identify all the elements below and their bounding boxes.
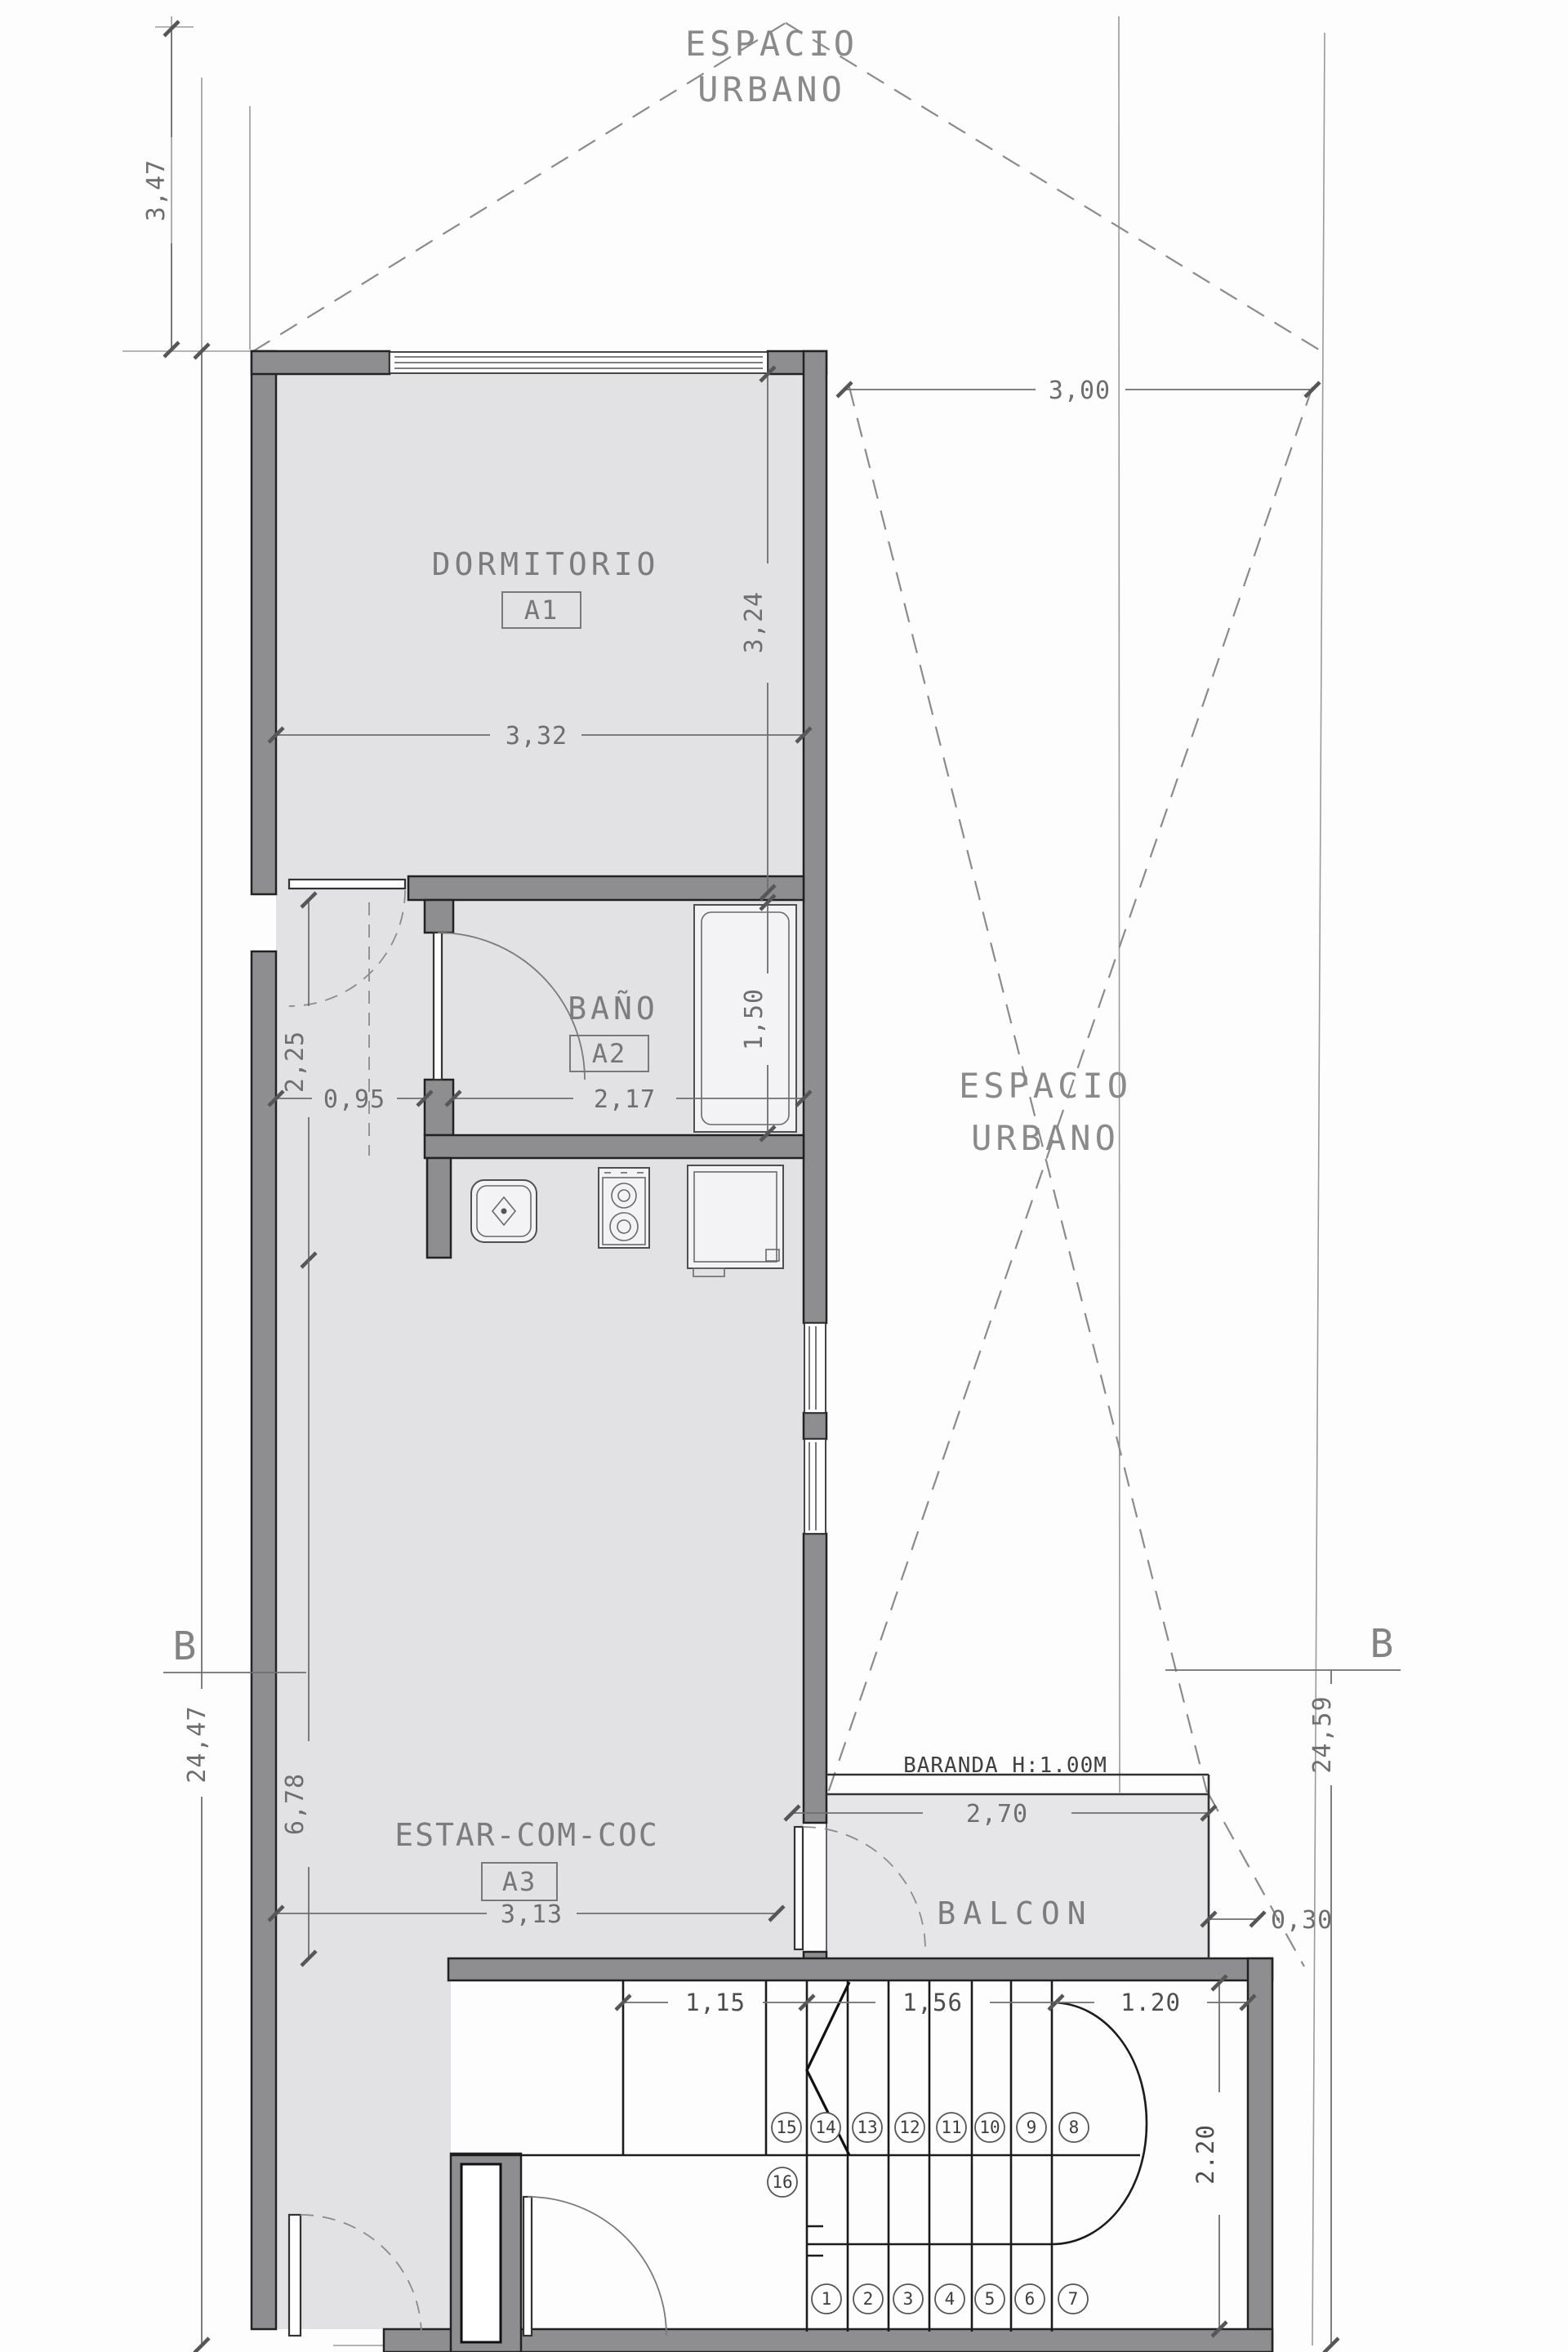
dim-dorm-depth: 3,24 xyxy=(740,591,768,653)
step-number-11: 11 xyxy=(941,2118,961,2137)
dim-lot-depth-right: 24,59 xyxy=(1308,1695,1337,1773)
step-number-13: 13 xyxy=(857,2118,877,2137)
espacio-urbano-right-line2: URBANO xyxy=(971,1118,1120,1158)
stair-step-circles: 15141312111098161234567 xyxy=(768,2113,1089,2314)
dim-estar-width: 3,13 xyxy=(501,1900,563,1929)
window-right-1 xyxy=(804,1323,826,1413)
step-number-12: 12 xyxy=(899,2118,920,2137)
dim-balcony-width: 2,70 xyxy=(966,1800,1028,1829)
fridge xyxy=(688,1165,783,1276)
dim-balcony-offset: 0,30 xyxy=(1271,1906,1333,1935)
dim-front-setback: 3,47 xyxy=(142,159,171,221)
dim-lot-depth-left: 24,47 xyxy=(183,1705,212,1783)
dim-stair-depth: 2.20 xyxy=(1192,2124,1219,2185)
wall-left-lower xyxy=(252,951,276,2329)
dim-estar-depth: 6,78 xyxy=(281,1773,310,1835)
wall-right-pier xyxy=(804,1413,826,1439)
step-number-3: 3 xyxy=(903,2289,914,2309)
floorplan-canvas: 15141312111098161234567 3,32 3,24 0,95 2… xyxy=(0,0,1568,2352)
step-number-4: 4 xyxy=(945,2289,955,2309)
dim-bath-depth: 1,50 xyxy=(740,988,768,1050)
door-stairhall-leaf xyxy=(523,2197,532,2336)
step-number-7: 7 xyxy=(1068,2289,1079,2309)
window-right-2 xyxy=(804,1439,826,1534)
room-label-balcon: BALCON xyxy=(937,1895,1093,1931)
wall-left-upper xyxy=(252,351,276,894)
door-stairhall-swing xyxy=(528,2197,666,2336)
kitchen-sink xyxy=(471,1180,537,1242)
step-number-8: 8 xyxy=(1069,2118,1080,2137)
step-number-15: 15 xyxy=(776,2118,796,2137)
room-fills xyxy=(276,374,1209,2329)
step-number-5: 5 xyxy=(985,2289,996,2309)
section-b-right: B xyxy=(1370,1621,1394,1667)
wall-kitchen-stub xyxy=(427,1158,451,1258)
espacio-urbano-right-line1: ESPACIO xyxy=(959,1066,1132,1106)
wall-right-mid xyxy=(804,1534,826,1823)
staircase: 15141312111098161234567 xyxy=(451,1980,1147,2332)
door-dormitorio-leaf xyxy=(289,880,405,889)
espacio-urbano-top-line2: URBANO xyxy=(697,69,846,109)
room-tag-a3: A3 xyxy=(502,1866,537,1897)
stove xyxy=(599,1168,649,1248)
room-label-bano: BAÑO xyxy=(568,991,659,1027)
wall-stair-north xyxy=(448,1958,1272,1980)
room-label-dormitorio: DORMITORIO xyxy=(432,546,660,582)
dim-side-gap: 3,00 xyxy=(1049,376,1111,405)
room-label-estar: ESTAR-COM-COC xyxy=(394,1817,658,1853)
step-number-10: 10 xyxy=(979,2118,1000,2137)
wall-stair-east xyxy=(1248,1958,1272,2352)
door-entry-leaf xyxy=(289,2215,301,2336)
step-number-14: 14 xyxy=(815,2118,835,2137)
step-number-16: 16 xyxy=(772,2172,792,2192)
step-number-2: 2 xyxy=(863,2289,874,2309)
wall-bath-pier-top xyxy=(425,900,453,933)
dim-dorm-width: 3,32 xyxy=(506,722,568,751)
dim-stair-run: 1,56 xyxy=(902,1989,963,2016)
floorplan-drawing: 15141312111098161234567 3,32 3,24 0,95 2… xyxy=(0,0,1568,2352)
railing-note: BARANDA H:1.00M xyxy=(903,1753,1107,1778)
step-number-9: 9 xyxy=(1027,2118,1037,2137)
window-top xyxy=(390,352,768,373)
dim-hall-width: 0,95 xyxy=(323,1085,385,1114)
door-balcony-leaf xyxy=(795,1827,803,1949)
wall-bath-south xyxy=(425,1135,804,1158)
wall-dorm-south xyxy=(408,876,804,900)
wall-bath-pier-bottom xyxy=(425,1080,453,1135)
wall-entry-pier xyxy=(451,2154,521,2352)
dim-stair-turn: 1.20 xyxy=(1120,1989,1181,2016)
dim-bath-width: 2,17 xyxy=(594,1085,656,1114)
wall-top-left xyxy=(252,351,390,374)
room-tag-a1: A1 xyxy=(524,595,559,626)
dim-hall-depth: 2,25 xyxy=(281,1031,310,1093)
dim-stair-landing: 1,15 xyxy=(685,1989,746,2016)
step-number-1: 1 xyxy=(822,2289,832,2309)
room-tag-a2: A2 xyxy=(592,1038,627,1069)
espacio-urbano-top-line1: ESPACIO xyxy=(685,24,858,64)
door-bath-leaf xyxy=(434,933,442,1080)
wall-right-upper xyxy=(804,351,826,1323)
step-number-6: 6 xyxy=(1025,2289,1036,2309)
section-b-left: B xyxy=(173,1624,197,1669)
